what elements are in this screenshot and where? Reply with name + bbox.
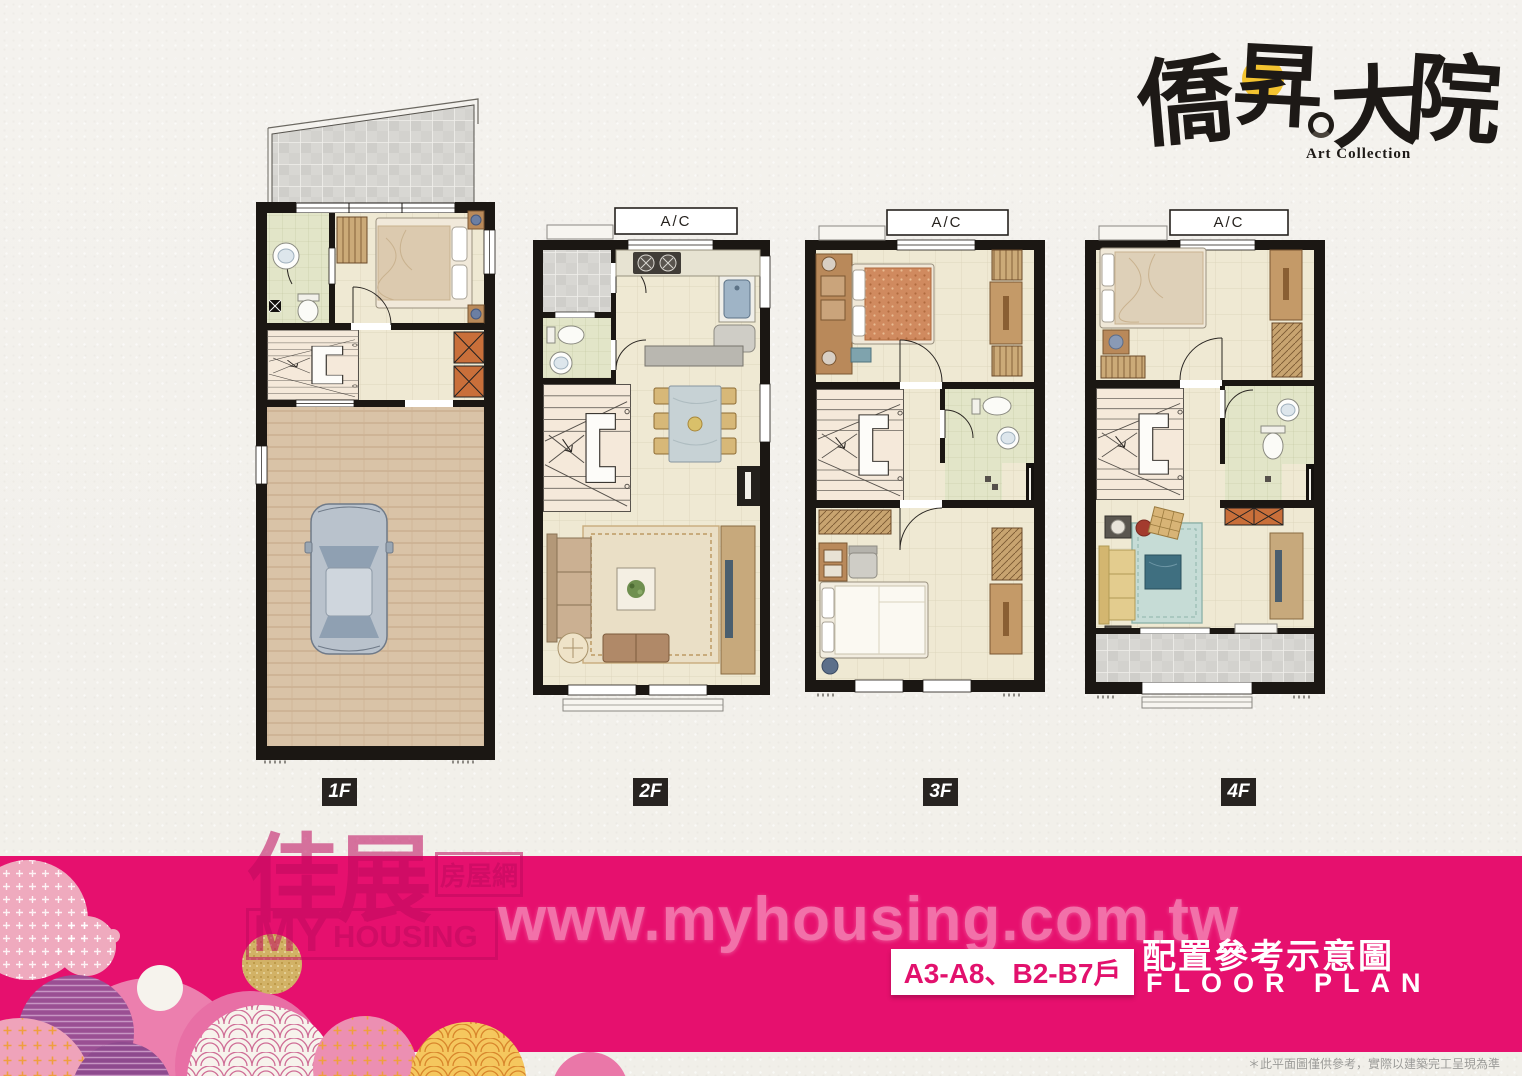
floor-plans-canvas: A/C xyxy=(240,88,1340,780)
brand-char-4: 院 xyxy=(1403,51,1504,152)
plan-4f-ac-label: A/C xyxy=(1213,214,1244,231)
plan-1f-bathroom xyxy=(267,213,335,323)
myhousing-logo-housing: HOUSING xyxy=(333,919,478,955)
plan-2f-living xyxy=(547,526,755,674)
cloud-white-small xyxy=(137,965,183,1011)
cloud-pink-plus-right xyxy=(313,1016,417,1076)
plan-2f-dining xyxy=(654,386,736,462)
url-watermark: www.myhousing.com.tw xyxy=(498,884,1239,955)
plan-2f-stairs xyxy=(543,384,631,511)
banner-title-en: FLOOR PLAN xyxy=(1146,968,1432,999)
plan-4f: A/C xyxy=(1085,210,1325,708)
plan-3f-ac-unit: A/C xyxy=(819,210,1008,240)
cloud-solid-pink-3 xyxy=(552,1052,628,1076)
plan-2f-ac-label: A/C xyxy=(660,213,691,230)
plan-1f xyxy=(256,99,495,762)
plan-1f-car xyxy=(305,504,393,654)
brand-logo: 僑 昇 大 院 Art Collection xyxy=(1138,44,1498,184)
logo-dot-icon xyxy=(1308,112,1334,138)
floor-label-2f: 2F xyxy=(633,778,668,806)
plan-1f-bed xyxy=(376,211,484,323)
cloud-orange-wave xyxy=(410,1022,526,1076)
myhousing-logo-my: MY xyxy=(253,911,327,958)
cloud-pink-plus-top xyxy=(0,860,120,980)
plan-3f-ac-label: A/C xyxy=(931,214,962,231)
plan-1f-top-window xyxy=(296,203,455,213)
plan-4f-ac-unit: A/C xyxy=(1099,210,1288,240)
plan-2f: A/C xyxy=(533,208,770,711)
plan-4f-balcony xyxy=(1096,624,1314,682)
plan-2f-hall-cabinet xyxy=(737,466,760,506)
poster: A/C xyxy=(0,0,1522,1076)
floor-label-4f: 4F xyxy=(1221,778,1256,806)
plan-3f-stairs xyxy=(816,389,904,500)
disclaimer-note: ＊此平面圖僅供參考，實際以建築完工呈現為準 xyxy=(1248,1055,1500,1072)
plan-1f-stairs xyxy=(267,330,359,399)
floor-label-1f: 1F xyxy=(322,778,357,806)
myhousing-logo: 佳展房屋網 MY HOUSING xyxy=(246,840,523,960)
plan-2f-ac-unit: A/C xyxy=(547,208,737,239)
plan-1f-front-yard xyxy=(268,99,478,208)
plan-3f-bathroom xyxy=(940,389,1034,463)
plan-3f: A/C xyxy=(805,210,1045,695)
unit-range-text: A3-A8、B2-B7戶 xyxy=(904,952,1122,992)
brand-subtitle: Art Collection xyxy=(1306,146,1411,163)
floor-label-3f: 3F xyxy=(923,778,958,806)
plan-4f-bathroom xyxy=(1220,386,1314,464)
brand-char-1: 僑 xyxy=(1134,52,1237,155)
unit-range-box: A3-A8、B2-B7戶 xyxy=(891,949,1134,995)
plan-1f-closet xyxy=(337,217,367,263)
plan-4f-stairs xyxy=(1096,388,1184,499)
